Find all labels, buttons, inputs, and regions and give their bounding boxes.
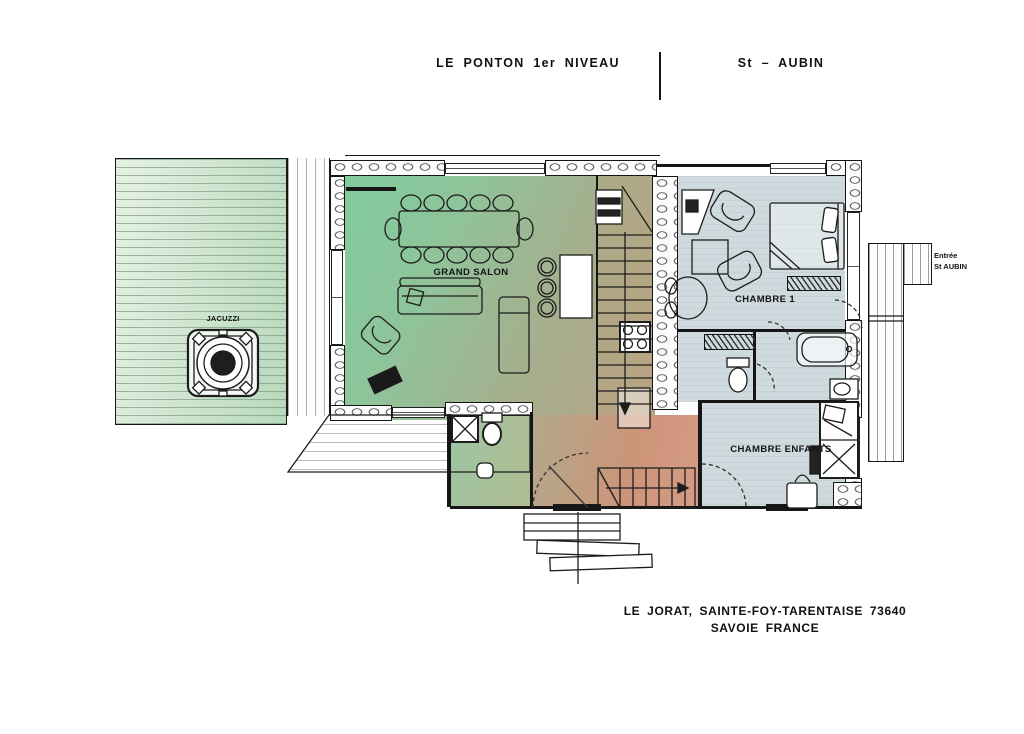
tv-speaker xyxy=(368,366,402,393)
toilet-bathroom xyxy=(727,358,749,392)
walkway-threshold xyxy=(868,316,904,321)
double-bed xyxy=(770,203,844,269)
label-jacuzzi: JACUZZI xyxy=(206,314,239,323)
armchair-chambre1-b xyxy=(715,248,764,293)
label-entree-line1: Entrée xyxy=(934,250,967,261)
jacuzzi-tub xyxy=(188,330,258,396)
armchair-chambre1-a xyxy=(708,188,758,235)
sink-bathroom xyxy=(830,379,858,399)
address-line-2: SAVOIE FRANCE xyxy=(711,621,820,635)
floorplan-page: { "header": { "title_left": "LE PONTON 1… xyxy=(0,0,1024,734)
round-table xyxy=(665,277,707,319)
door-swings xyxy=(533,300,862,508)
label-entree: Entrée St AUBIN xyxy=(934,250,967,273)
dining-table xyxy=(385,195,533,263)
side-table xyxy=(692,240,728,274)
toilet-wc xyxy=(482,413,502,445)
kitchen-island xyxy=(560,255,592,318)
label-entree-line2: St AUBIN xyxy=(934,261,967,272)
exterior-steps xyxy=(524,512,652,584)
armchair-salon xyxy=(359,314,403,357)
sink-wc xyxy=(477,463,493,478)
chaise-longue xyxy=(499,297,529,373)
furniture-overlay xyxy=(0,0,1024,734)
label-grand-salon: GRAND SALON xyxy=(433,267,508,278)
staircase-lower xyxy=(598,468,695,508)
fireplace xyxy=(682,190,714,234)
bar-stools xyxy=(538,258,556,317)
address-line-1: LE JORAT, SAINTE-FOY-TARENTAISE 73640 xyxy=(624,604,907,618)
label-chambre-enfants: CHAMBRE ENFANTS xyxy=(730,444,832,455)
label-chambre-1: CHAMBRE 1 xyxy=(735,294,795,305)
sink-enfants xyxy=(787,475,817,508)
sofa xyxy=(398,278,482,314)
shower-box xyxy=(452,416,478,442)
bunk-bed xyxy=(810,402,858,478)
staircase-main xyxy=(596,186,652,414)
bathtub xyxy=(797,333,857,366)
